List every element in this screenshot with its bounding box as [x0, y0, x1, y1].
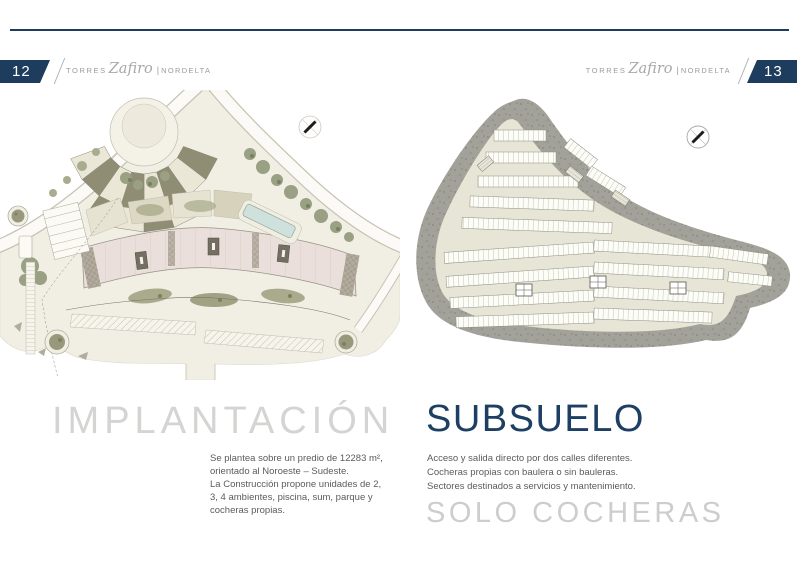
page-number-right: 13 [764, 63, 783, 80]
subsuelo-description: Acceso y salida directo por dos calles d… [427, 452, 689, 494]
divider-slash-right [732, 58, 750, 84]
north-compass-icon [299, 116, 321, 138]
brand-torres: Torres [586, 66, 627, 75]
brand-nordelta: NORDELTA [161, 66, 211, 75]
subsuelo-floor-plan [398, 90, 797, 380]
small-building [19, 236, 32, 258]
divider-slash-left [48, 58, 66, 84]
brochure-spread: 12 Torres Zafiro | NORDELTA Torres Zafir… [0, 0, 797, 563]
subsuelo-title: SUBSUELO [426, 398, 645, 441]
brand-nordelta: NORDELTA [681, 66, 731, 75]
street-parking-strip [26, 262, 35, 354]
brand-zafiro: Zafiro [109, 61, 153, 77]
header-rule [10, 29, 789, 31]
brand-divider: | [157, 65, 159, 75]
brand-logo-left: Torres Zafiro | NORDELTA [66, 61, 211, 77]
page-number-right-badge: 13 [747, 60, 797, 83]
north-compass-icon [687, 126, 709, 148]
page-number-left: 12 [12, 63, 31, 80]
implantacion-description: Se plantea sobre un predio de 12283 m², … [210, 452, 428, 517]
implantacion-site-plan [0, 90, 400, 380]
brand-logo-right: Torres Zafiro | NORDELTA [586, 61, 731, 77]
brand-zafiro: Zafiro [628, 61, 672, 77]
solo-cocheras-subtitle: SOLO COCHERAS [426, 497, 725, 530]
brand-divider: | [677, 65, 679, 75]
brand-torres: Torres [66, 66, 107, 75]
page-number-left-badge: 12 [0, 60, 50, 83]
implantacion-title: IMPLANTACIÓN [52, 400, 394, 443]
